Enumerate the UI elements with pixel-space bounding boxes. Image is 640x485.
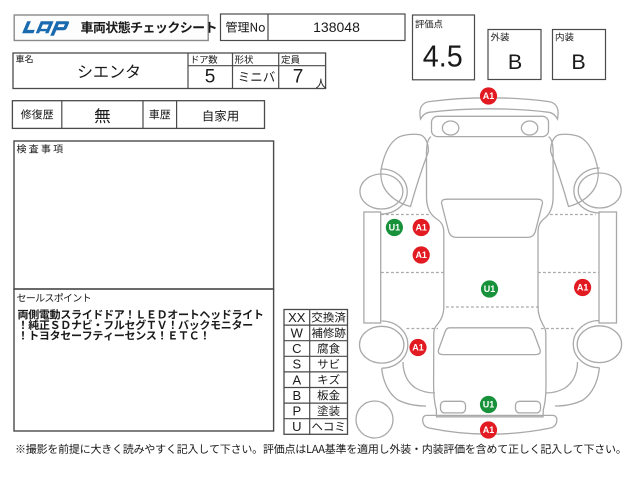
- svg-text:A1: A1: [483, 425, 495, 435]
- svg-text:A1: A1: [415, 250, 427, 260]
- svg-text:C: C: [292, 341, 301, 356]
- svg-text:W: W: [291, 326, 304, 341]
- svg-text:A: A: [292, 372, 301, 387]
- svg-text:U1: U1: [389, 223, 401, 233]
- svg-text:A1: A1: [412, 343, 424, 353]
- svg-text:P: P: [292, 404, 301, 419]
- svg-text:7: 7: [293, 67, 304, 88]
- svg-text:U: U: [292, 419, 301, 434]
- svg-text:B: B: [292, 388, 301, 403]
- svg-text:A1: A1: [415, 223, 427, 233]
- svg-text:5: 5: [205, 67, 216, 88]
- svg-text:4.5: 4.5: [423, 39, 463, 74]
- svg-text:B: B: [508, 50, 522, 74]
- svg-text:U1: U1: [484, 284, 496, 294]
- svg-text:S: S: [292, 357, 301, 372]
- svg-text:XX: XX: [288, 310, 306, 325]
- svg-text:A1: A1: [483, 91, 495, 101]
- svg-text:B: B: [571, 50, 585, 74]
- svg-text:U1: U1: [483, 400, 495, 410]
- svg-text:A1: A1: [577, 283, 589, 293]
- svg-text:138048: 138048: [313, 19, 360, 35]
